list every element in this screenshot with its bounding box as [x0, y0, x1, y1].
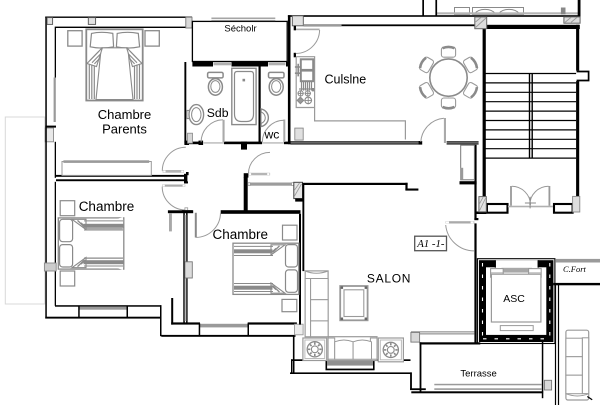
svg-text:Culslne: Culslne [325, 73, 367, 87]
svg-text:Chambre: Chambre [213, 227, 269, 242]
svg-text:Parents: Parents [102, 122, 147, 137]
svg-text:C.Fort: C.Fort [563, 264, 587, 274]
svg-text:Chambre: Chambre [98, 107, 151, 122]
svg-text:Terrasse: Terrasse [460, 368, 496, 379]
svg-text:Chambre: Chambre [79, 199, 135, 214]
svg-text:wc: wc [264, 128, 280, 142]
svg-text:SALON: SALON [367, 271, 411, 285]
svg-text:A1 -1-: A1 -1- [416, 238, 445, 250]
svg-text:Sdb: Sdb [207, 106, 229, 120]
svg-text:Sécholr: Sécholr [224, 24, 256, 35]
svg-text:ASC: ASC [503, 293, 525, 305]
